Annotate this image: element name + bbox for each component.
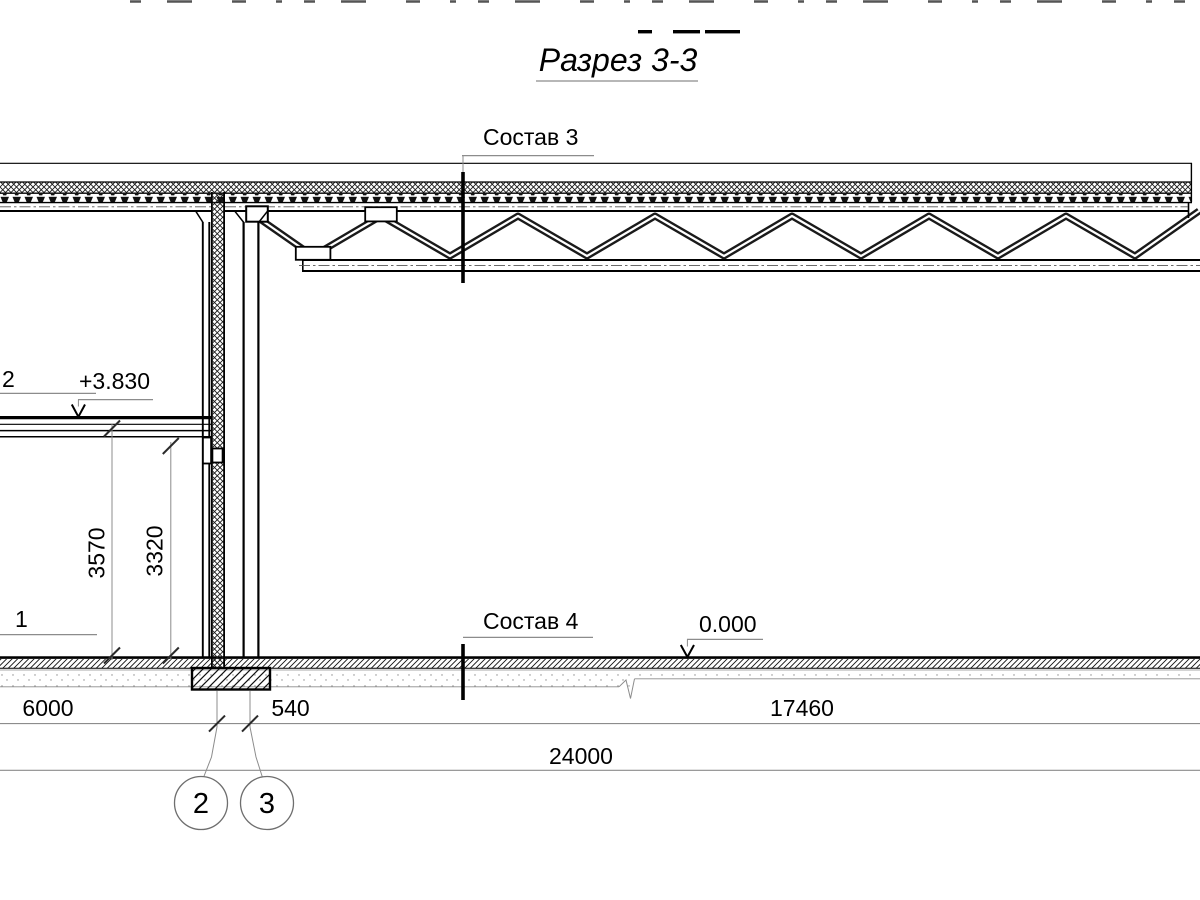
grid-axis-label-2: 2 [175,788,227,821]
bottom-gusset [296,247,331,260]
foundation-block [192,668,270,690]
dim-540: 540 [263,695,318,722]
truss-chords [0,203,1200,272]
top-edge-artifacts [130,2,1200,34]
steel-decking [0,194,1192,202]
section-drawing: Разрез 3-3 Состав 3 Состав 4 2 1 +3.830 … [0,0,1200,900]
truss-diagonals [257,211,1199,256]
top-gusset [365,207,397,221]
elevation-arrow-ground [681,645,694,657]
elevation-mark-ground: 0.000 [699,611,757,638]
wall-panel [213,192,224,668]
dim-6000: 6000 [8,695,88,722]
dim-3320: 3320 [142,525,169,576]
cut-label-sostav-4: Состав 4 [483,608,578,635]
cut-label-sostav-3: Состав 3 [483,124,578,151]
wall-and-columns [196,192,268,668]
label-sostav-2-partial: 2 [2,366,15,393]
dim-3570: 3570 [84,527,111,578]
beam-seat [203,438,211,464]
truss-details [246,206,397,259]
grid-axis-label-3: 3 [241,788,293,821]
second-floor-slab [0,418,223,464]
roof-assembly [0,163,1192,202]
label-sostav-1-partial: 1 [15,606,28,633]
elevation-mark-upper: +3.830 [79,368,150,395]
ground-floor [0,658,1200,699]
dim-24000: 24000 [536,743,626,770]
insulation-layer [0,182,1192,193]
dim-17460: 17460 [758,695,846,722]
page-title: Разрез 3-3 [538,42,698,79]
